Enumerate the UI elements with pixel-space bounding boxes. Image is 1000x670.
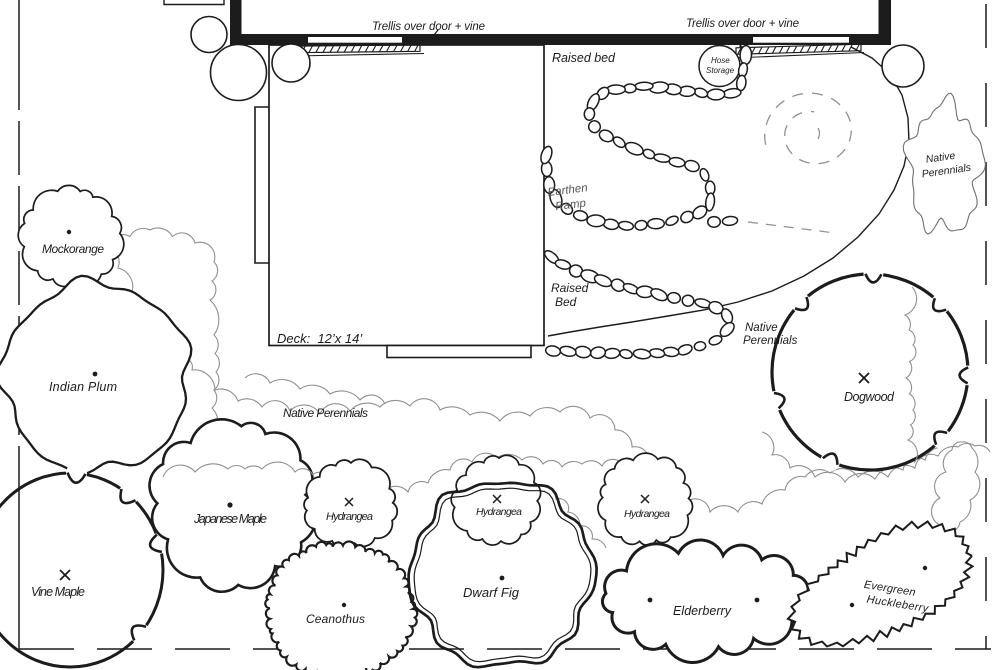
svg-text:Mockorange: Mockorange [42, 242, 104, 256]
svg-text:Dwarf Fig: Dwarf Fig [463, 585, 520, 600]
svg-text:Japanese Maple: Japanese Maple [193, 512, 267, 526]
svg-text:Elderberry: Elderberry [673, 604, 732, 618]
svg-text:Hydrangea: Hydrangea [624, 508, 670, 520]
svg-text:Deck: 12’x 14’: Deck: 12’x 14’ [277, 331, 363, 346]
svg-text:Perennials: Perennials [743, 335, 798, 347]
svg-text:Vine Maple: Vine Maple [31, 585, 85, 599]
svg-text:Raised: Raised [551, 281, 589, 295]
svg-text:Hydrangea: Hydrangea [326, 511, 373, 523]
svg-text:Bed: Bed [555, 295, 577, 309]
svg-text:Indian Plum: Indian Plum [49, 380, 117, 394]
svg-text:Native: Native [745, 322, 778, 334]
svg-text:Dogwood: Dogwood [844, 390, 895, 404]
svg-text:Trellis over door + vine: Trellis over door + vine [686, 18, 799, 30]
svg-text:Ceanothus: Ceanothus [306, 612, 365, 626]
svg-text:Hydrangea: Hydrangea [476, 506, 522, 518]
svg-text:Raised bed: Raised bed [552, 51, 616, 65]
svg-text:Trellis over door + vine: Trellis over door + vine [372, 21, 485, 33]
svg-text:Native Perennials: Native Perennials [283, 406, 368, 420]
svg-text:Hose: Hose [711, 56, 730, 65]
svg-text:Storage: Storage [706, 66, 735, 75]
